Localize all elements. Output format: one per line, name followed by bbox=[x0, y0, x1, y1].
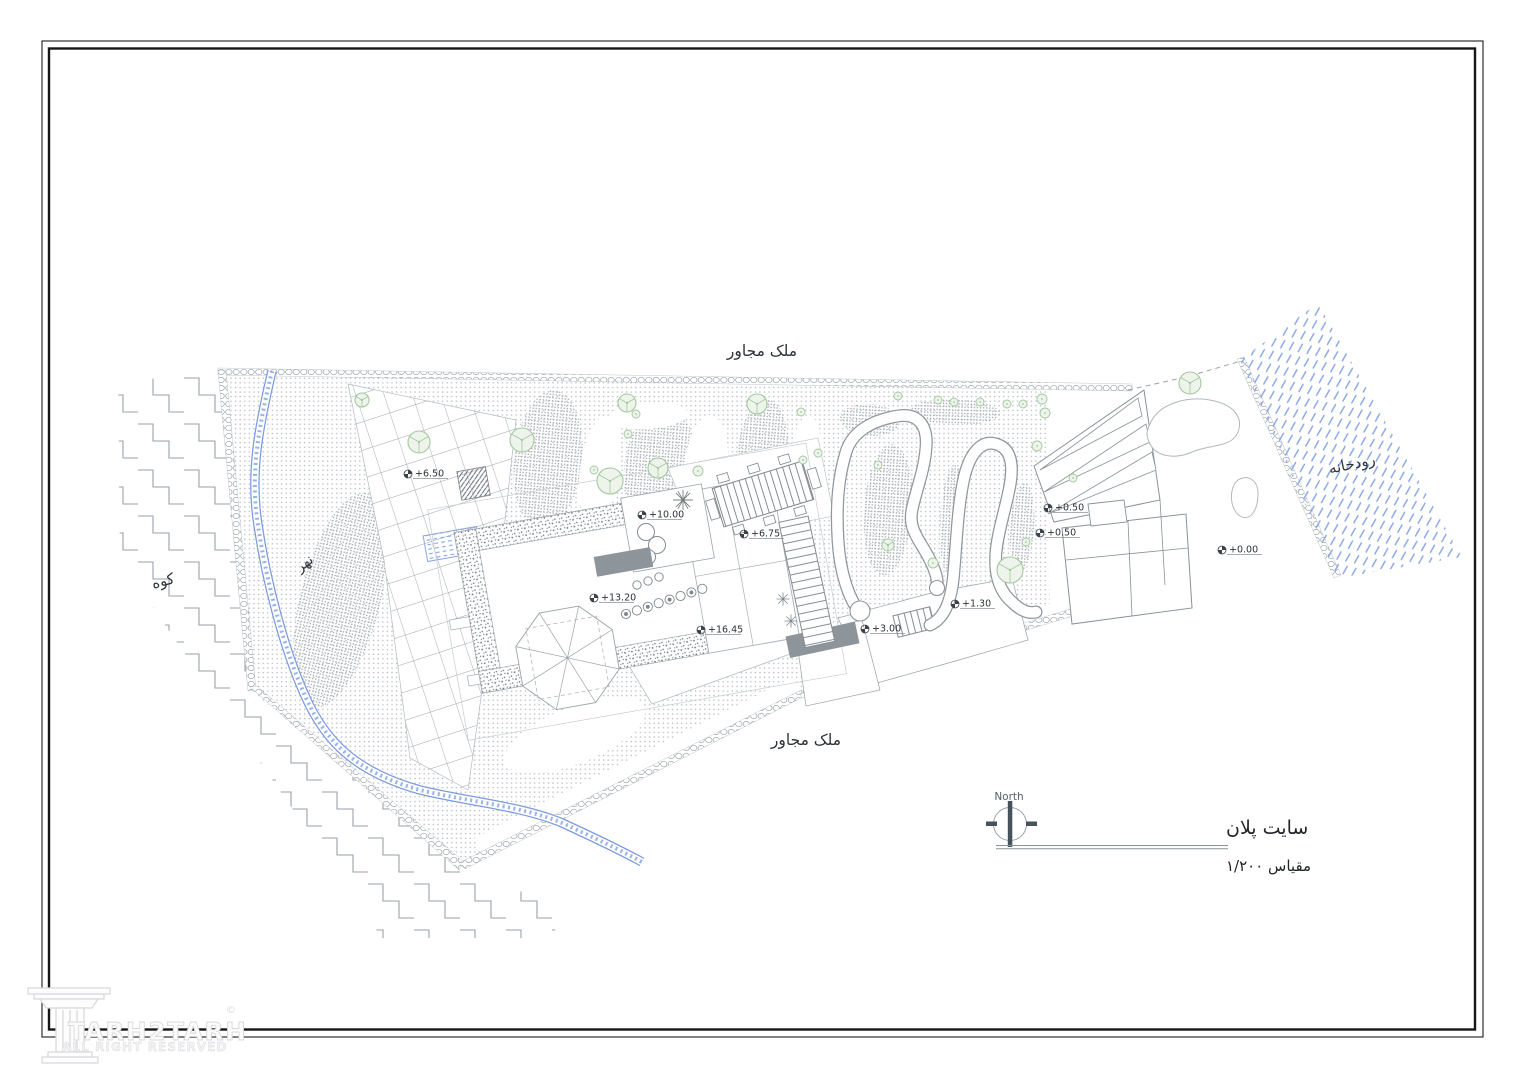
svg-text:+16.45: +16.45 bbox=[708, 625, 743, 636]
svg-text:+1.30: +1.30 bbox=[962, 599, 991, 610]
tree-symbol bbox=[1037, 394, 1047, 404]
tree-symbol bbox=[976, 398, 984, 406]
tree-symbol bbox=[1179, 372, 1201, 394]
label-adjacent-property-bottom: ملک مجاور bbox=[770, 731, 841, 750]
svg-text:+13.20: +13.20 bbox=[601, 593, 636, 604]
tree-symbol bbox=[510, 428, 534, 452]
tree-symbol bbox=[1040, 408, 1050, 418]
tree-symbol bbox=[1022, 538, 1030, 546]
svg-text:+3.00: +3.00 bbox=[872, 624, 901, 635]
tree-symbol bbox=[648, 458, 668, 478]
label-adjacent-property-top: ملک مجاور bbox=[726, 342, 797, 361]
svg-text:+0.50: +0.50 bbox=[1055, 503, 1084, 514]
plan-scale: مقیاس ۱/۲۰۰ bbox=[1226, 857, 1311, 875]
tree-symbol bbox=[747, 394, 767, 414]
tree-symbol bbox=[894, 392, 902, 400]
entrance-block bbox=[1062, 514, 1192, 624]
tree-symbol bbox=[408, 431, 430, 453]
tree-symbol bbox=[624, 430, 632, 438]
tree-symbol bbox=[632, 410, 640, 418]
tree-symbol bbox=[590, 466, 598, 474]
tree-symbol bbox=[874, 461, 882, 469]
tree-symbol bbox=[934, 396, 942, 404]
hatched-wall bbox=[457, 467, 491, 501]
svg-text:+6.50: +6.50 bbox=[415, 469, 444, 480]
tree-symbol bbox=[1003, 400, 1011, 408]
drawing-sheet: +6.50+10.00+6.75+13.20+16.45+3.00+1.30+0… bbox=[0, 0, 1527, 1080]
svg-text:+10.00: +10.00 bbox=[649, 510, 684, 521]
tree-symbol bbox=[618, 394, 636, 412]
tree-symbol bbox=[797, 408, 805, 416]
tree-symbol bbox=[882, 539, 894, 551]
palm-plant-icon bbox=[673, 490, 693, 510]
plan-title: سایت پلان bbox=[1226, 817, 1308, 839]
svg-text:+0.00: +0.00 bbox=[1229, 545, 1258, 556]
tree-symbol bbox=[950, 398, 958, 406]
tree-symbol bbox=[997, 557, 1023, 583]
site-plan-canvas: +6.50+10.00+6.75+13.20+16.45+3.00+1.30+0… bbox=[0, 0, 1527, 1080]
tree-symbol bbox=[1032, 441, 1042, 451]
svg-text:+0.50: +0.50 bbox=[1047, 528, 1076, 539]
entrance-kiosk bbox=[1088, 500, 1127, 526]
tree-symbol bbox=[814, 449, 822, 457]
watermark-copyright: © bbox=[226, 1005, 236, 1016]
tree-symbol bbox=[1069, 474, 1077, 482]
tree-symbol bbox=[597, 468, 623, 494]
watermark-rights: ALL RIGHT RESERVED bbox=[62, 1040, 227, 1054]
svg-text:+6.75: +6.75 bbox=[751, 529, 780, 540]
tree-symbol bbox=[693, 466, 703, 476]
tree-symbol bbox=[928, 558, 938, 568]
tree-symbol bbox=[355, 393, 369, 407]
tree-symbol bbox=[1019, 400, 1027, 408]
tree-symbol bbox=[799, 456, 807, 464]
